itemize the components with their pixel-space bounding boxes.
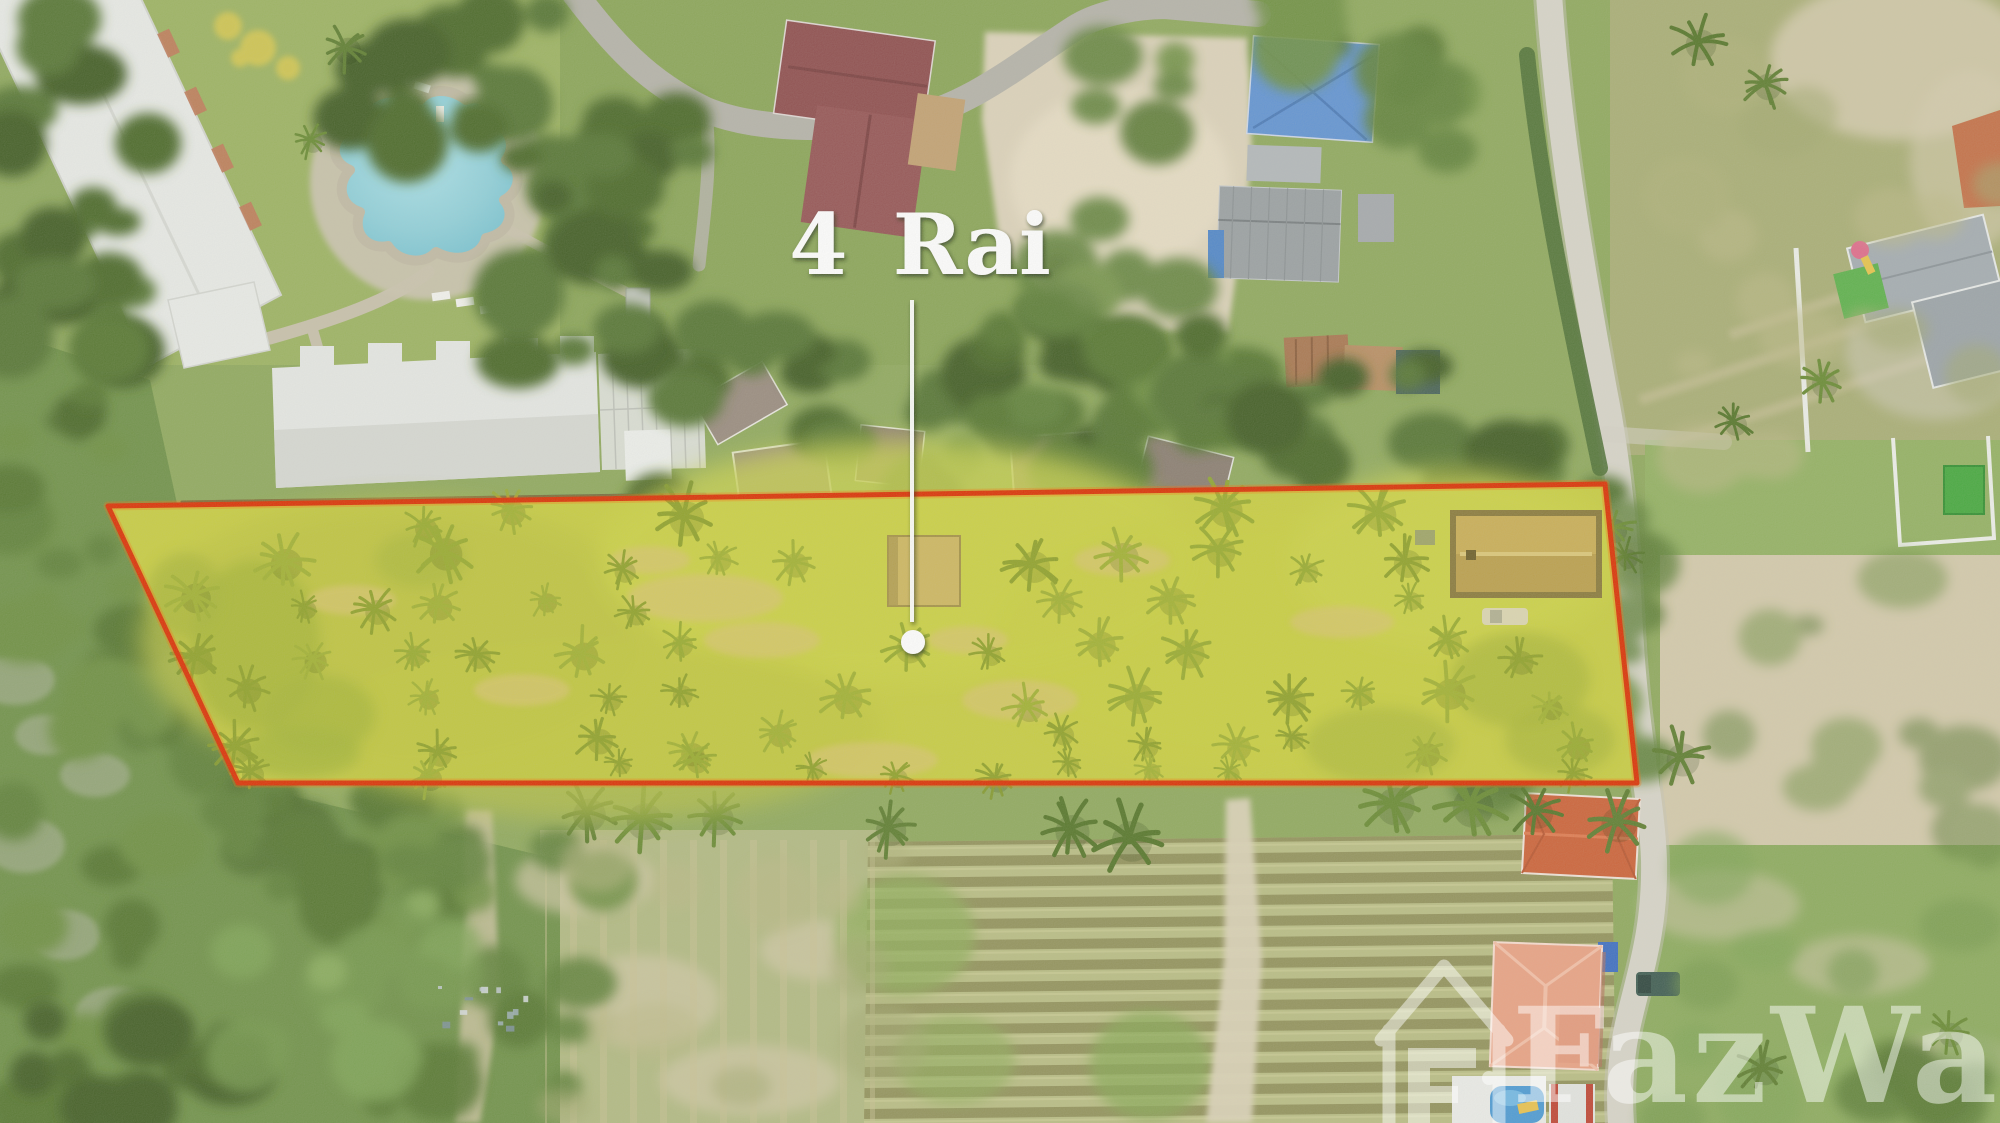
aerial-photo-canvas: 4 Rai FazWaz xyxy=(0,0,2000,1123)
watermark-text: FazWaz xyxy=(1512,979,2000,1123)
photo-grain xyxy=(0,0,2000,1123)
aerial-photo: 4 Rai FazWaz xyxy=(0,0,2000,1123)
